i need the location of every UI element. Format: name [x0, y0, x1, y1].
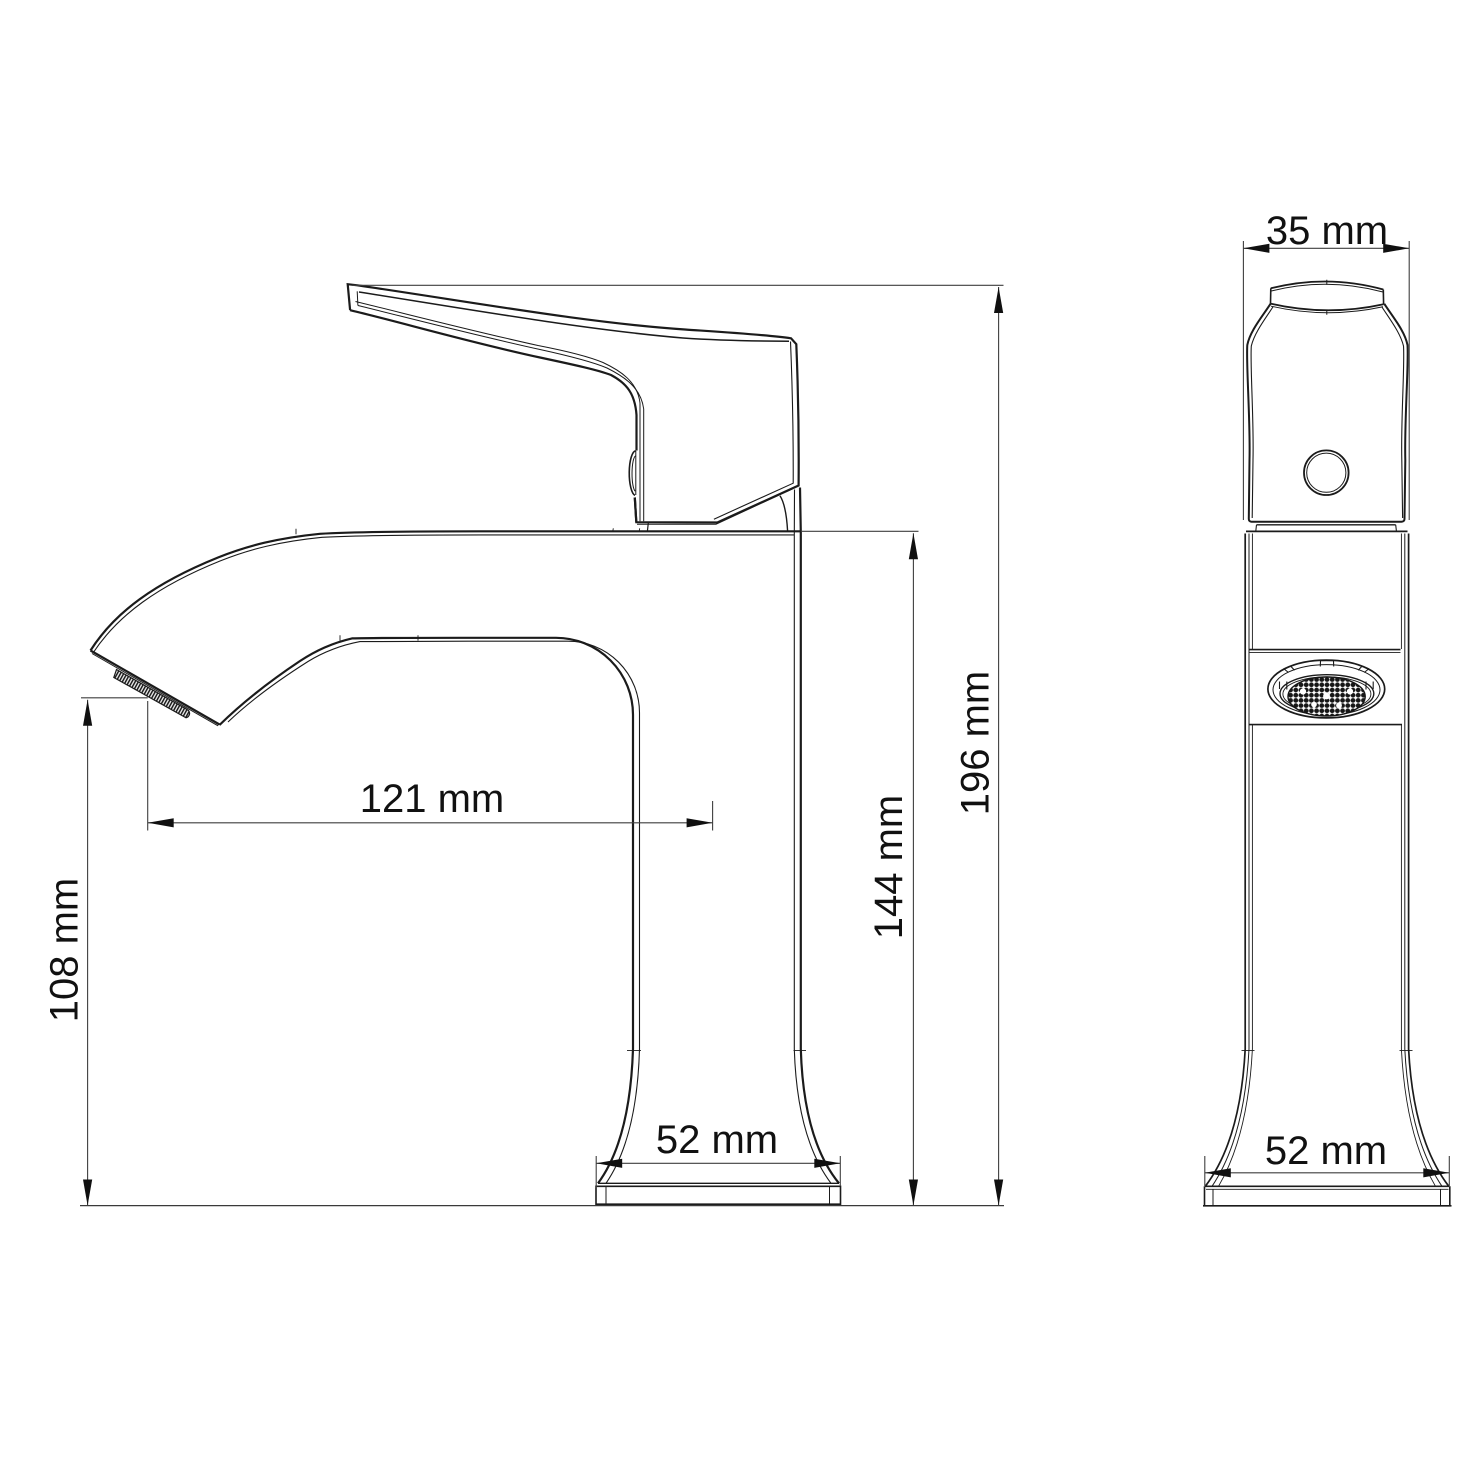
svg-text:196 mm: 196 mm — [954, 671, 998, 816]
svg-text:144 mm: 144 mm — [867, 795, 911, 940]
svg-text:35 mm: 35 mm — [1266, 209, 1388, 253]
svg-text:121 mm: 121 mm — [360, 777, 505, 821]
svg-text:52 mm: 52 mm — [656, 1118, 778, 1162]
svg-text:52 mm: 52 mm — [1265, 1129, 1387, 1173]
svg-text:108 mm: 108 mm — [43, 878, 87, 1023]
